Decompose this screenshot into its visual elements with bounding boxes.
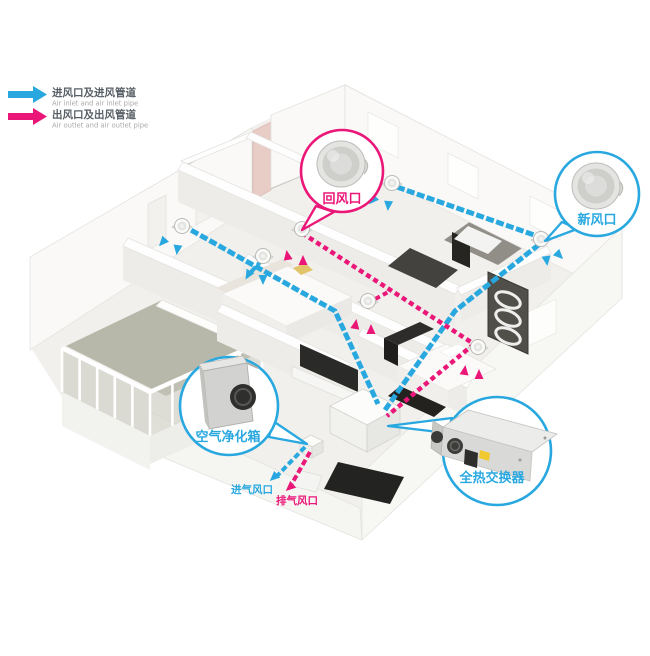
legend-outlet-en: Air outlet and air outlet pipe — [52, 122, 148, 130]
inlet-arrow-icon — [8, 86, 47, 103]
legend-outlet-zh: 出风口及出风管道 — [52, 108, 136, 121]
air-purifier-label: 空气净化箱 — [195, 429, 260, 445]
fresh-air-label: 新风口 — [577, 212, 616, 228]
legend: 进风口及进风管道 Air inlet and air inlet pipe 出风… — [8, 86, 148, 130]
intake-port-label: 进气风口 — [231, 483, 273, 496]
exhaust-port-label: 排气风口 — [276, 494, 318, 507]
return-air-label: 回风口 — [322, 192, 361, 207]
legend-inlet-zh: 进风口及进风管道 — [52, 86, 136, 99]
legend-inlet-en: Air inlet and air inlet pipe — [52, 100, 138, 108]
ventilation-diagram: 进气风口 排气风口 回风口 新风口 — [0, 0, 650, 656]
heat-exchanger-label: 全热交换器 — [458, 470, 525, 486]
pink-door — [253, 122, 271, 200]
house-cutaway-illustration: 进气风口 排气风口 回风口 新风口 — [0, 0, 650, 656]
outlet-arrow-icon — [8, 108, 47, 125]
callout-fresh-air: 新风口 — [545, 152, 639, 241]
